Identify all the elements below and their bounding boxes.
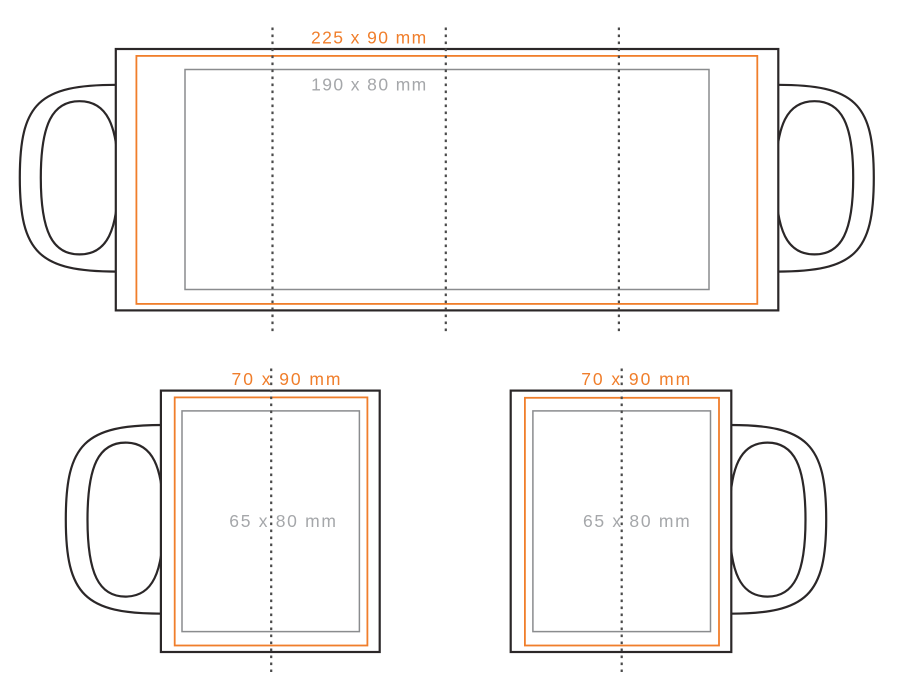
svg-text:65 x 80 mm: 65 x 80 mm — [583, 511, 691, 531]
svg-text:225 x 90 mm: 225 x 90 mm — [311, 28, 428, 48]
svg-text:65 x 80 mm: 65 x 80 mm — [229, 511, 337, 531]
svg-text:190 x 80 mm: 190 x 80 mm — [311, 75, 428, 95]
svg-text:70 x 90 mm: 70 x 90 mm — [232, 369, 343, 389]
svg-text:70 x 90 mm: 70 x 90 mm — [581, 369, 692, 389]
